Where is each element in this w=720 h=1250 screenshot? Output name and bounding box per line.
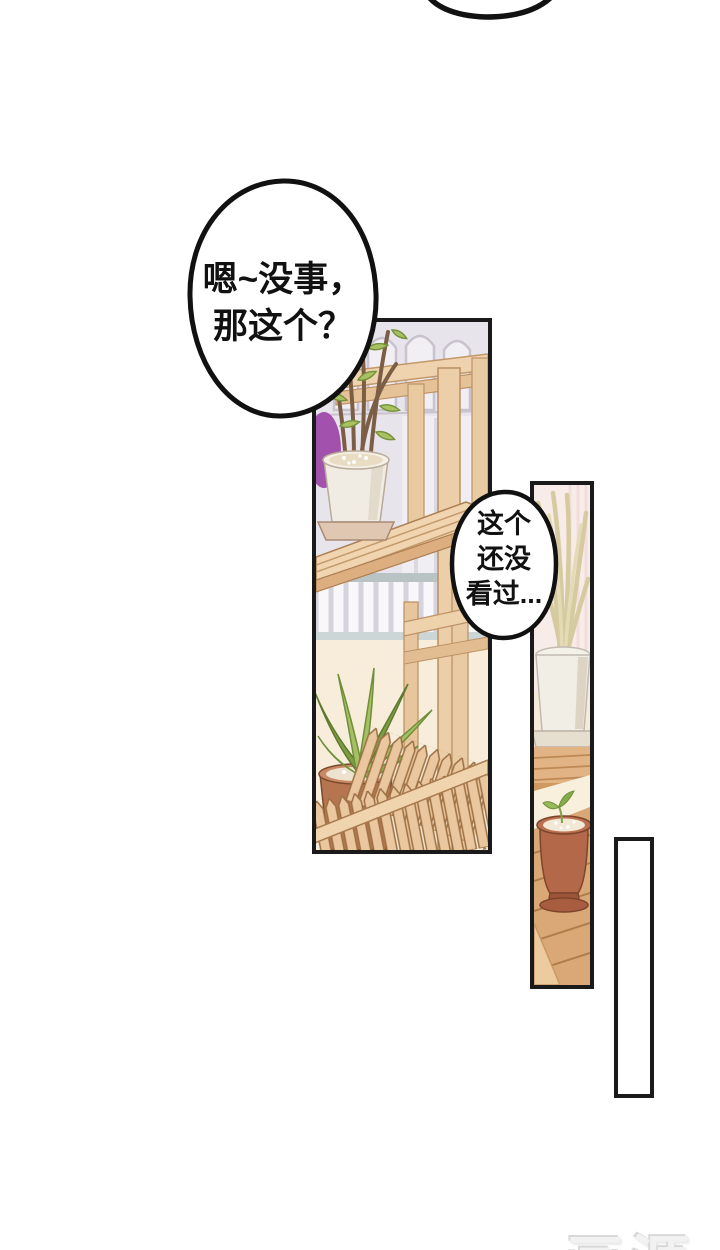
bubble-small-line-1: 这个 — [477, 507, 531, 542]
bubble-main-line-2: 那这个？ — [213, 303, 353, 350]
bubble-small-line-3: 看过... — [466, 577, 543, 612]
top-partial-bubble — [416, 0, 566, 24]
speech-bubble-small-text: 这个 还没 看过... — [466, 507, 543, 612]
speech-bubble-main-text: 嗯~没事， 那这个？ — [203, 256, 363, 350]
speech-bubble-main: 嗯~没事， 那这个？ — [185, 176, 381, 422]
comic-page: 嗯~没事， 那这个？ 这个 还没 看过... 画涯 — [0, 0, 720, 1250]
watermark-logo: 画涯 — [566, 1216, 696, 1250]
bubble-main-line-1: 嗯~没事， — [203, 256, 363, 303]
bubble-small-line-2: 还没 — [477, 542, 531, 577]
panel-empty — [614, 837, 654, 1098]
speech-bubble-small: 这个 还没 看过... — [448, 488, 560, 642]
